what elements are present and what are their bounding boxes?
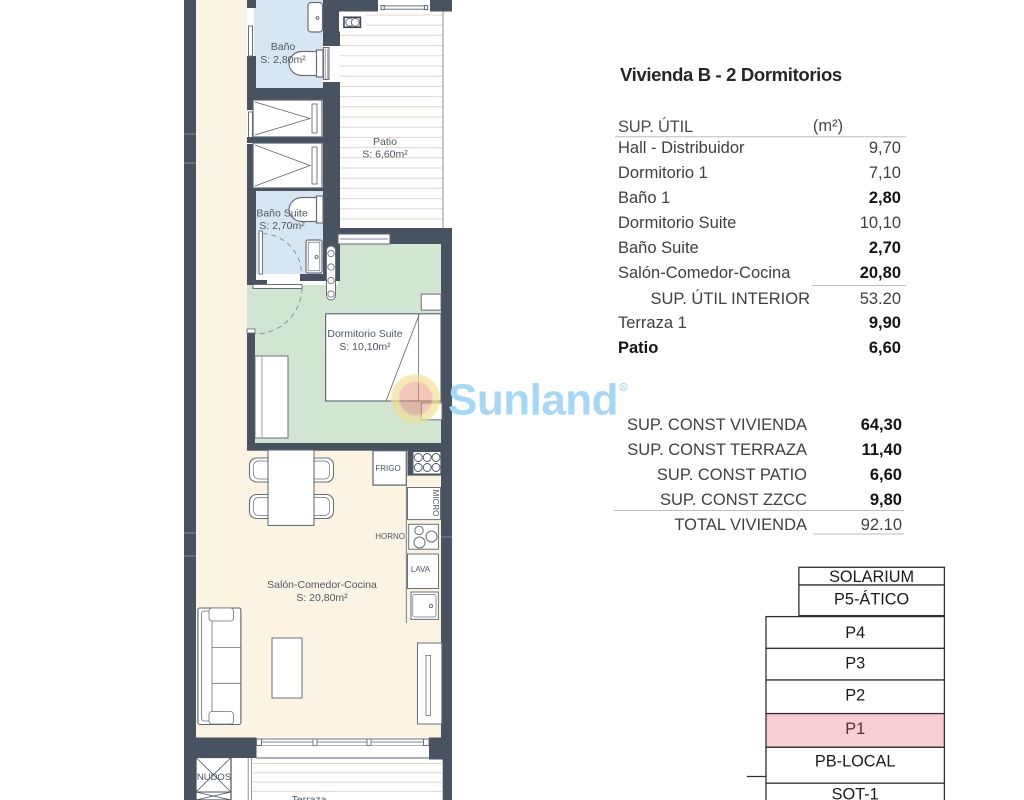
svg-text:6,60: 6,60 — [870, 466, 902, 484]
svg-text:Baño Suite: Baño Suite — [256, 208, 308, 220]
svg-text:SUP. CONST VIVIENDA: SUP. CONST VIVIENDA — [627, 416, 807, 434]
svg-text:SOT-1: SOT-1 — [832, 786, 879, 800]
svg-text:SUP. CONST TERRAZA: SUP. CONST TERRAZA — [627, 441, 807, 459]
svg-text:20,80: 20,80 — [860, 264, 901, 282]
svg-text:SUP. ÚTIL INTERIOR: SUP. ÚTIL INTERIOR — [650, 289, 810, 308]
svg-text:Hall - Distribuidor: Hall - Distribuidor — [618, 139, 745, 157]
svg-text:TOTAL VIVIENDA: TOTAL VIVIENDA — [674, 516, 807, 534]
svg-text:NUDOS: NUDOS — [197, 772, 231, 783]
svg-text:Salón-Comedor-Cocina: Salón-Comedor-Cocina — [267, 579, 377, 591]
svg-text:Terraza 1: Terraza 1 — [618, 314, 687, 332]
svg-text:9,70: 9,70 — [869, 139, 901, 157]
svg-text:LAVA: LAVA — [411, 565, 431, 574]
svg-text:SUP. CONST PATIO: SUP. CONST PATIO — [657, 466, 807, 484]
svg-text:Sunland: Sunland — [448, 376, 618, 425]
svg-text:SUP. ÚTIL: SUP. ÚTIL — [618, 117, 693, 136]
svg-text:S: 2,70m²: S: 2,70m² — [259, 220, 305, 232]
svg-text:9,80: 9,80 — [870, 491, 902, 509]
svg-text:MICRO: MICRO — [431, 490, 440, 517]
svg-text:HORNO: HORNO — [375, 532, 405, 541]
svg-text:Dormitorio Suite: Dormitorio Suite — [618, 214, 736, 232]
svg-text:2,80: 2,80 — [869, 189, 901, 207]
svg-text:64,30: 64,30 — [861, 416, 902, 434]
svg-text:7,10: 7,10 — [869, 164, 901, 182]
svg-text:Salón-Comedor-Cocina: Salón-Comedor-Cocina — [618, 264, 791, 282]
svg-text:P1: P1 — [845, 720, 865, 738]
svg-text:P2: P2 — [845, 687, 865, 705]
svg-text:S: 2,80m²: S: 2,80m² — [260, 54, 306, 66]
svg-text:SOLARIUM: SOLARIUM — [829, 568, 914, 586]
svg-text:S: 20,80m²: S: 20,80m² — [296, 592, 348, 604]
svg-text:P5-ÁTICO: P5-ÁTICO — [834, 590, 909, 609]
svg-text:Baño: Baño — [271, 41, 296, 53]
svg-text:FRIGO: FRIGO — [375, 464, 400, 473]
svg-text:92.10: 92.10 — [861, 516, 902, 534]
svg-text:Patio: Patio — [373, 136, 397, 148]
svg-text:Baño 1: Baño 1 — [618, 189, 670, 207]
svg-text:2,70: 2,70 — [869, 239, 901, 257]
svg-text:10,10: 10,10 — [860, 214, 901, 232]
svg-text:SUP. CONST ZZCC: SUP. CONST ZZCC — [660, 491, 807, 509]
svg-text:R: R — [622, 386, 626, 392]
svg-text:Baño Suite: Baño Suite — [618, 239, 699, 257]
svg-text:Patio: Patio — [618, 339, 658, 357]
svg-text:Dormitorio Suite: Dormitorio Suite — [327, 328, 402, 340]
svg-text:Terraza: Terraza — [291, 794, 326, 800]
svg-text:Vivienda B - 2 Dormitorios: Vivienda B - 2 Dormitorios — [620, 64, 842, 85]
svg-text:P3: P3 — [845, 655, 865, 673]
svg-text:P4: P4 — [845, 624, 865, 642]
svg-text:Dormitorio 1: Dormitorio 1 — [618, 164, 708, 182]
svg-text:6,60: 6,60 — [869, 339, 901, 357]
svg-text:9,90: 9,90 — [869, 314, 901, 332]
svg-text:S: 10,10m²: S: 10,10m² — [339, 341, 391, 353]
svg-text:11,40: 11,40 — [862, 441, 902, 459]
svg-text:(m²): (m²) — [813, 117, 843, 135]
svg-text:53.20: 53.20 — [860, 290, 901, 308]
svg-text:S: 6,60m²: S: 6,60m² — [362, 149, 408, 161]
svg-text:PB-LOCAL: PB-LOCAL — [815, 752, 896, 770]
